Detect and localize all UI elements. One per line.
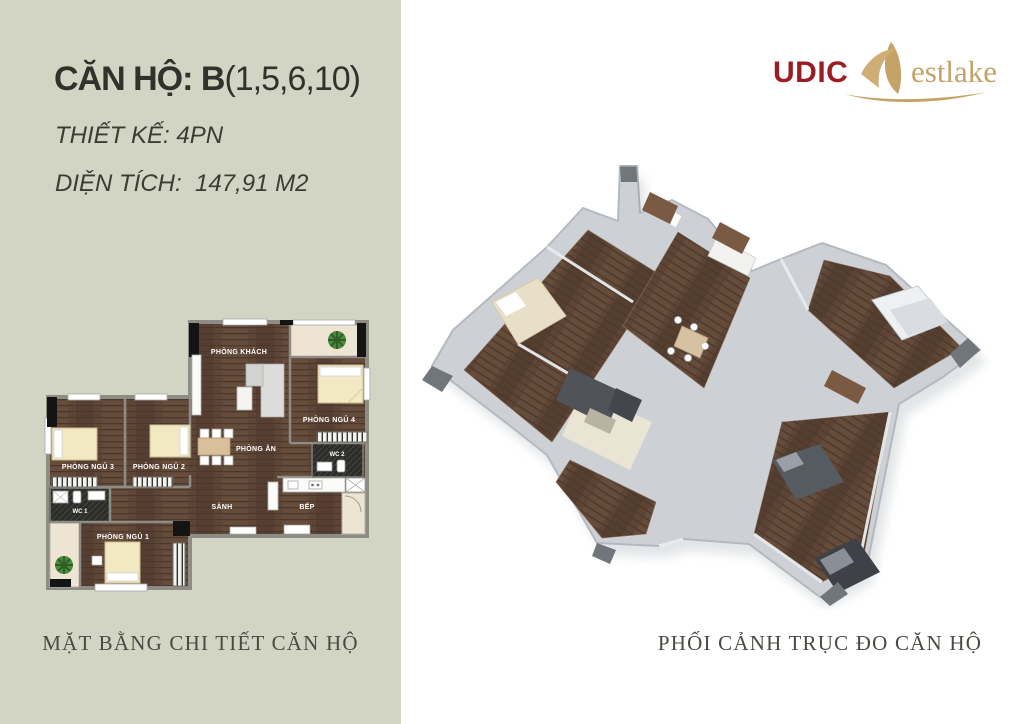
dining-set	[198, 429, 233, 465]
plant-icon	[328, 331, 346, 349]
perspective-panel: UDIC estlake	[401, 0, 1024, 724]
room-label-wc2: WC 2	[330, 452, 346, 458]
swoosh-icon	[843, 90, 988, 106]
perspective-caption: PHỐI CẢNH TRỤC ĐO CĂN HỘ	[620, 631, 1020, 656]
brand-text: UDIC	[773, 56, 848, 90]
design-spec: THIẾT KẾ: 4PN	[55, 122, 223, 150]
floorplan-panel: CĂN HỘ: B(1,5,6,10) THIẾT KẾ: 4PN DIỆN T…	[0, 0, 401, 724]
title-units: (1,5,6,10)	[224, 60, 360, 98]
udic-westlake-logo: UDIC estlake	[765, 38, 995, 108]
room-label-bedroom2: PHÒNG NGỦ 2	[133, 462, 185, 471]
floorplan-2d: PHÒNG KHÁCH PHÒNG NGỦ 4 WC 2 PHÒNG ĂN PH…	[40, 310, 380, 605]
room-label-living: PHÒNG KHÁCH	[211, 347, 267, 356]
bed-pn2	[150, 425, 190, 457]
room-label-wc1: WC 1	[73, 509, 89, 515]
balcony-top	[290, 325, 364, 357]
plant-icon	[55, 556, 73, 574]
brochure-page: CĂN HỘ: B(1,5,6,10) THIẾT KẾ: 4PN DIỆN T…	[0, 0, 1024, 724]
room-label-hall: SẢNH	[211, 502, 232, 511]
room-label-bedroom4: PHÒNG NGỦ 4	[303, 415, 355, 424]
room-label-bedroom3: PHÒNG NGỦ 3	[62, 462, 114, 471]
floorplan-3d	[420, 130, 995, 610]
title-prefix: CĂN HỘ: B	[54, 60, 224, 98]
loggia-right	[342, 493, 365, 534]
bed-pn3	[52, 428, 97, 460]
bed-pn4	[318, 365, 363, 403]
project-text: estlake	[911, 54, 997, 90]
room-label-bedroom1: PHÒNG NGỦ 1	[97, 532, 149, 541]
apartment-title: CĂN HỘ: B(1,5,6,10)	[54, 60, 360, 99]
balcony-bottom-left	[50, 523, 80, 587]
detail-caption: MẶT BẰNG CHI TIẾT CĂN HỘ	[0, 631, 401, 656]
area-spec: DIỆN TÍCH: 147,91 M2	[55, 170, 308, 198]
room-label-dining: PHÒNG ĂN	[236, 444, 276, 453]
